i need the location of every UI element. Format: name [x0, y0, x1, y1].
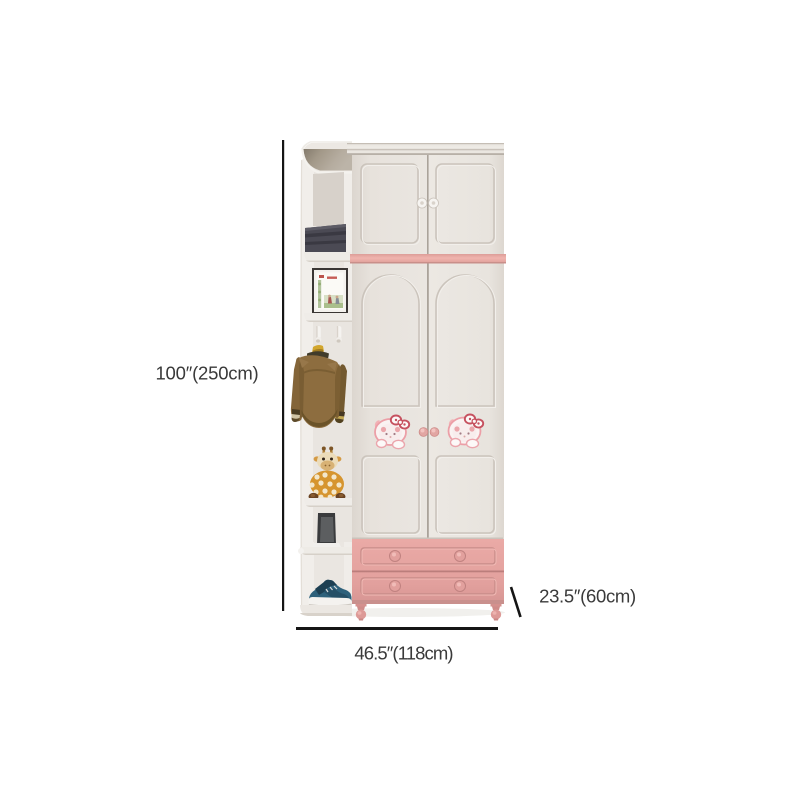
svg-text:23.5″(60cm): 23.5″(60cm): [539, 586, 636, 607]
svg-text:46.5″(118cm): 46.5″(118cm): [354, 643, 453, 664]
svg-text:100″(250cm): 100″(250cm): [155, 363, 258, 384]
